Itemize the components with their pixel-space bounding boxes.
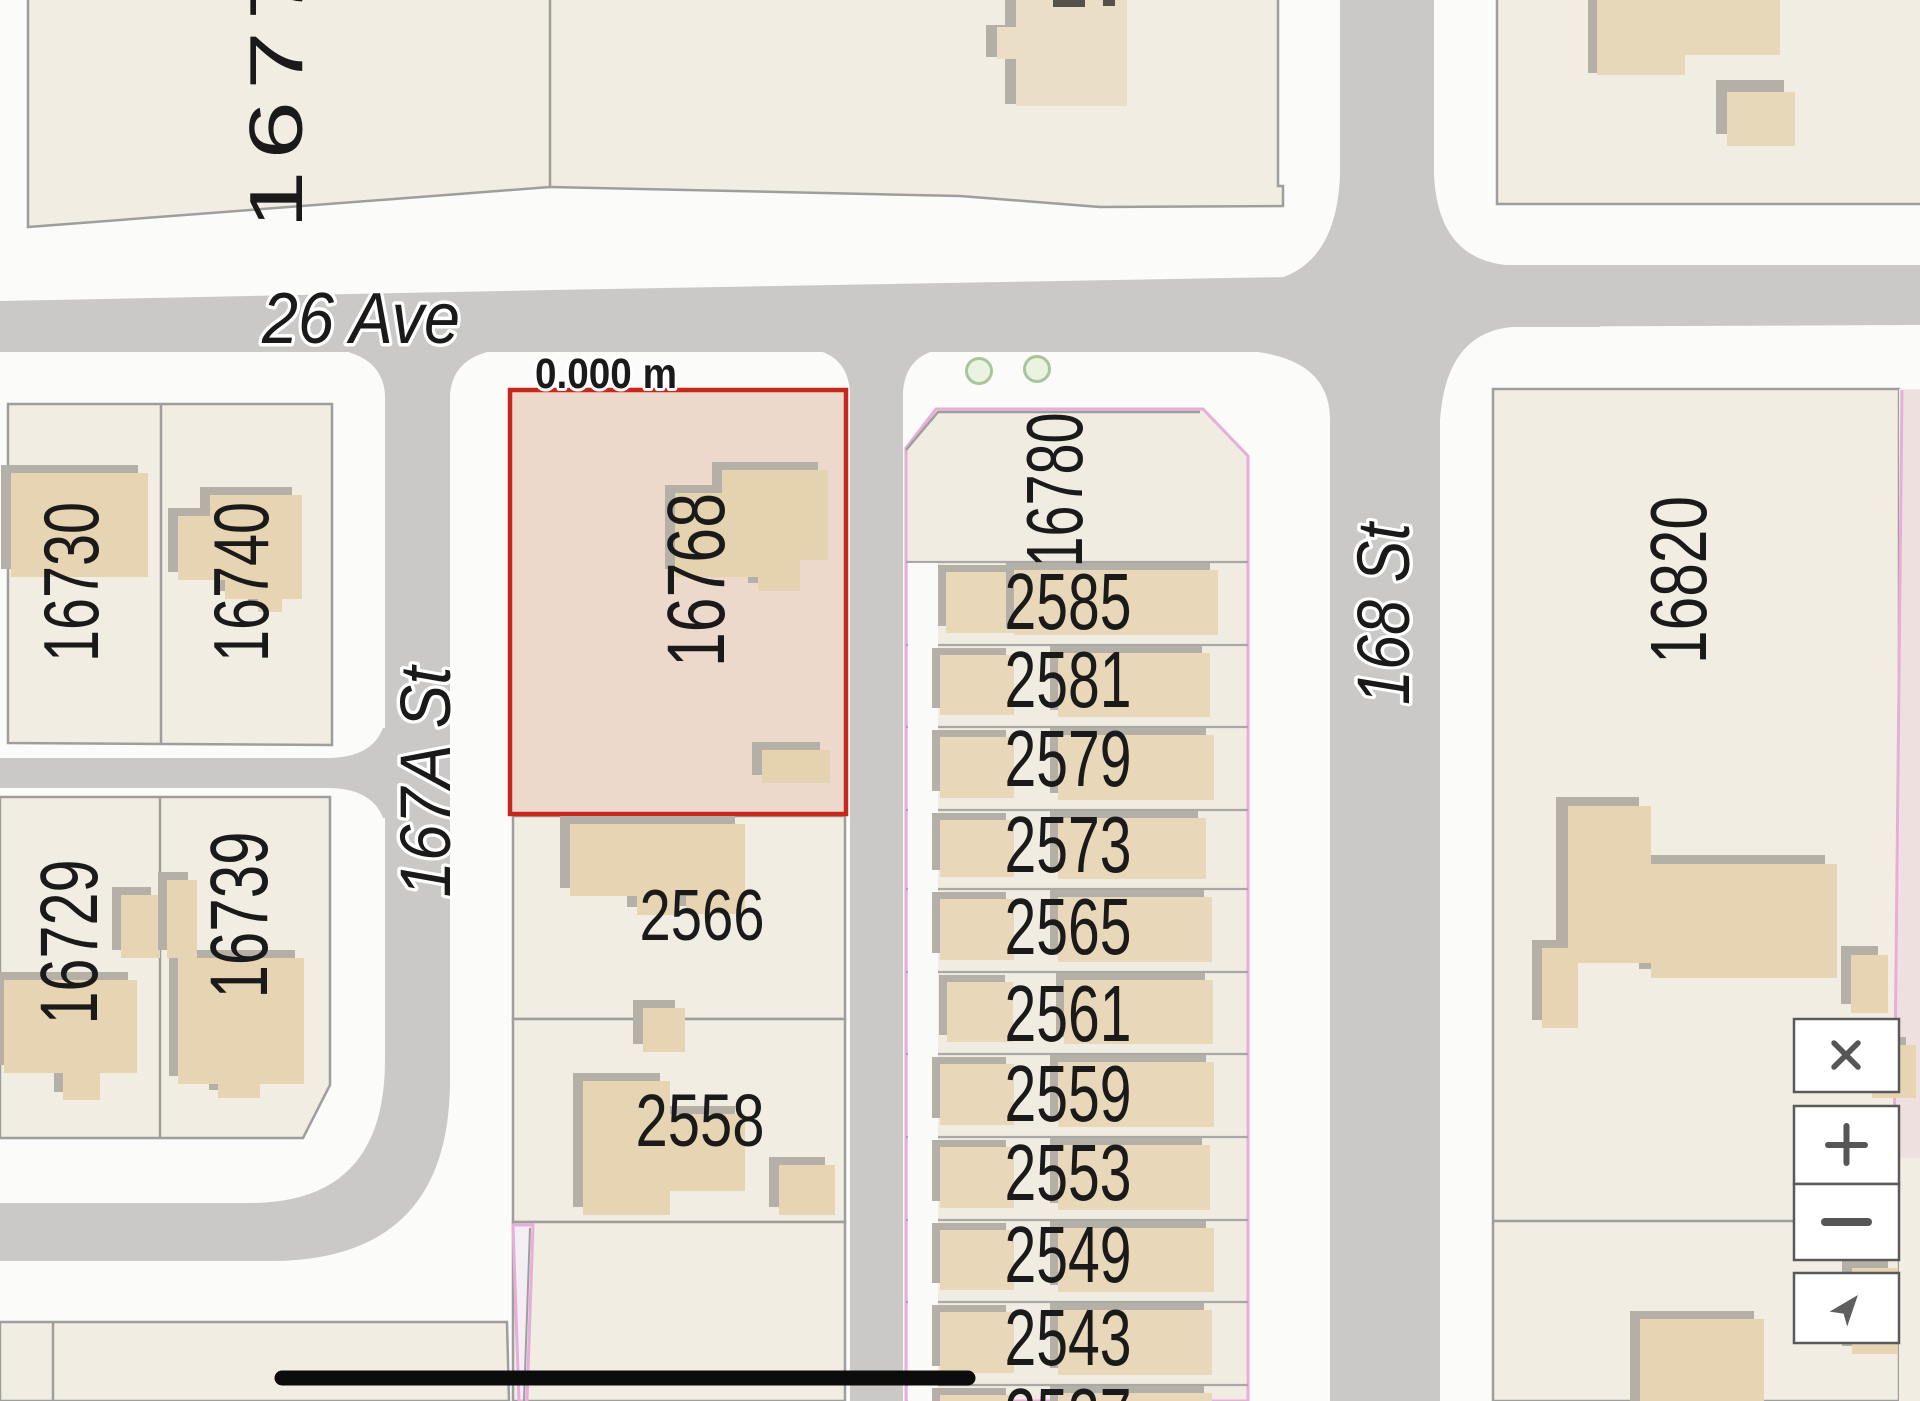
svg-text:0.000 m: 0.000 m [535,350,677,398]
svg-text:2561: 2561 [1005,969,1132,1058]
svg-text:16740: 16740 [197,502,285,662]
svg-text:16730: 16730 [27,502,115,662]
svg-text:16820: 16820 [1634,496,1723,664]
svg-text:16768: 16768 [651,493,742,667]
svg-text:168 St: 168 St [1342,520,1425,705]
svg-text:167A St: 167A St [387,663,466,897]
svg-text:16739: 16739 [194,832,285,999]
svg-text:2585: 2585 [1005,557,1132,646]
svg-text:2566: 2566 [640,876,765,956]
svg-text:2553: 2553 [1005,1128,1132,1217]
svg-text:16770: 16770 [235,0,319,229]
svg-text:2581: 2581 [1005,635,1132,724]
svg-text:16729: 16729 [24,860,115,1025]
svg-text:16780: 16780 [1010,413,1099,568]
svg-text:2549: 2549 [1005,1210,1132,1299]
svg-text:2559: 2559 [1005,1049,1132,1138]
svg-text:2537: 2537 [1005,1372,1132,1401]
svg-text:2565: 2565 [1005,882,1132,971]
svg-text:2558: 2558 [636,1079,765,1162]
svg-text:26 Ave: 26 Ave [261,279,460,359]
svg-text:2543: 2543 [1005,1293,1132,1382]
svg-text:2579: 2579 [1005,714,1132,803]
svg-text:2573: 2573 [1005,800,1132,889]
